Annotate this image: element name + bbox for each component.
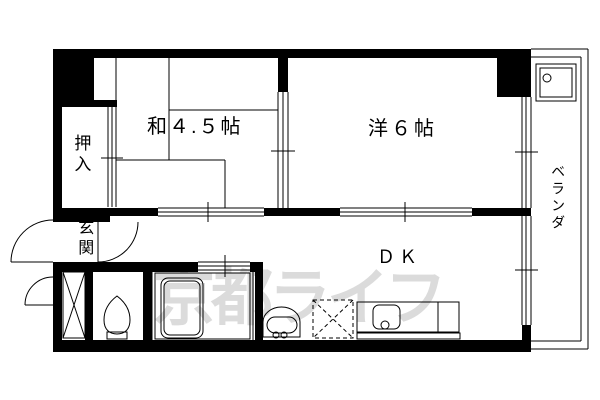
closet-sliding-door — [101, 107, 123, 207]
washing-machine-pan — [536, 64, 576, 101]
wall-bath-left — [143, 272, 152, 342]
interior-door — [98, 221, 138, 262]
meterbox-door — [25, 277, 53, 305]
wall-mid-a — [110, 208, 158, 216]
wall-mid-b — [264, 208, 340, 216]
partition-sliding-door — [271, 92, 295, 208]
wall-top — [53, 49, 531, 58]
wall-corner-topright — [497, 49, 531, 97]
label-closet: 押入 — [71, 134, 89, 176]
label-western-room: 洋６帖 — [368, 119, 437, 141]
wall-mid-c — [472, 208, 531, 216]
label-entrance: 玄関 — [75, 219, 92, 259]
floorplan-canvas: 京都ライフ — [0, 0, 600, 400]
wall-bottom — [53, 340, 531, 352]
refrigerator-space — [313, 300, 353, 338]
label-japanese-room: 和４.５帖 — [147, 117, 243, 139]
bathroom-door — [198, 255, 250, 277]
label-dining-kitchen: ＤＫ — [377, 248, 421, 267]
wall-left-lower — [53, 272, 62, 352]
wall-closet-top — [53, 100, 117, 107]
shoe-storage — [63, 272, 85, 338]
kitchen-sink-counter — [357, 302, 460, 339]
wall-right-stub — [522, 325, 531, 341]
wall-bath-right — [255, 272, 263, 342]
floorplan-drawing — [0, 0, 600, 400]
label-balcony: ベランダ — [550, 164, 565, 232]
toilet — [104, 296, 130, 339]
window-youshitsu-dk — [340, 202, 472, 222]
window-washitsu-dk — [158, 202, 264, 222]
wall-left-upper — [53, 58, 62, 218]
wall-toilet-left — [85, 272, 93, 342]
wall-partition-stub — [278, 58, 288, 92]
bathtub — [152, 270, 253, 342]
entrance-door — [11, 220, 53, 262]
washbasin — [263, 307, 300, 338]
